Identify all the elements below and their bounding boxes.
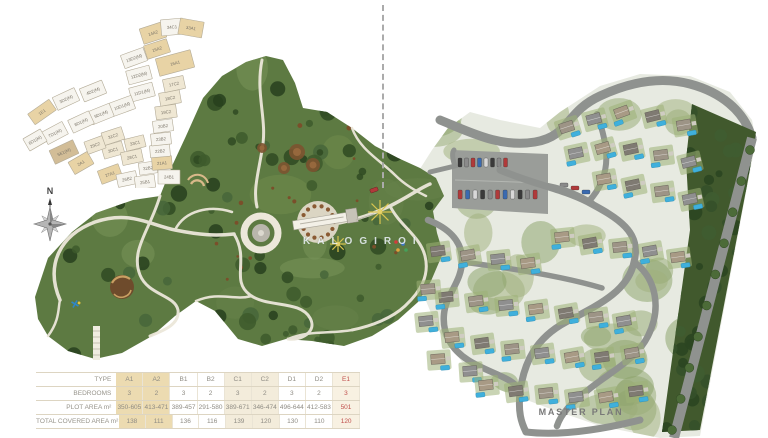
- pool: [592, 364, 602, 370]
- north-label: N: [47, 186, 54, 196]
- parcel: 3D2(M): [52, 88, 80, 111]
- pool: [531, 268, 541, 274]
- house: [524, 298, 551, 322]
- table-cell: 3: [279, 387, 306, 400]
- parcel-label: 34C1: [167, 24, 178, 30]
- table-cell: 2: [198, 387, 225, 400]
- house: [559, 346, 586, 370]
- parcel: 1E1: [28, 99, 57, 125]
- house: [416, 279, 441, 301]
- table-row-label: TYPE: [36, 373, 116, 386]
- table-cell: 2: [143, 387, 170, 400]
- pool: [665, 196, 675, 202]
- table-cell: C2: [252, 373, 279, 386]
- parcel-label: 22B2: [155, 148, 166, 154]
- parcel: 25B1: [134, 174, 156, 188]
- table-cell: 120: [333, 415, 360, 428]
- table-cell: 413-471: [143, 401, 170, 414]
- pool: [623, 253, 632, 258]
- table-cell: 496-644: [279, 401, 306, 414]
- house: [474, 375, 500, 398]
- parcel-label: 21A1: [157, 160, 168, 166]
- pool: [455, 343, 464, 348]
- table-cell: 110: [306, 415, 333, 428]
- parcel: 24B1: [158, 170, 180, 184]
- pool: [417, 296, 426, 301]
- table-cell: 350-605: [116, 401, 143, 414]
- table-cell: D2: [306, 373, 333, 386]
- parcel: 4D2(M): [79, 80, 106, 102]
- pool: [429, 327, 438, 332]
- table-cell: D1: [279, 373, 306, 386]
- table-cell: 291-580: [198, 401, 225, 414]
- table-cell: B1: [170, 373, 197, 386]
- house: [650, 180, 677, 204]
- house: [666, 246, 693, 270]
- house: [553, 302, 580, 326]
- table-cell: 2: [252, 387, 279, 400]
- pool: [545, 358, 555, 364]
- pool: [440, 365, 449, 370]
- table-row: PLOT AREA m²350-605413-471389-457291-580…: [36, 400, 360, 414]
- house: [414, 311, 440, 334]
- parcel-map: 14A234C133A115A216A113D2(M)12D2(M)11D1(M…: [8, 6, 258, 188]
- steps-path: [93, 326, 100, 360]
- parcel: 17C2: [162, 75, 185, 92]
- table-cell: 139: [226, 415, 253, 428]
- pool: [519, 396, 529, 402]
- pool: [681, 262, 691, 268]
- house: [550, 227, 576, 250]
- house: [426, 349, 451, 371]
- house: [577, 232, 604, 256]
- table-row-label: TOTAL COVERED AREA m²: [36, 415, 119, 428]
- table-cell: C1: [225, 373, 252, 386]
- pool: [476, 392, 485, 397]
- table-cell: 138: [119, 415, 146, 428]
- pool: [599, 322, 609, 328]
- parcel: 18C2: [159, 90, 182, 106]
- table-cell: 130: [280, 415, 307, 428]
- parcel: 19C2: [155, 104, 178, 120]
- house: [591, 168, 618, 192]
- house: [590, 346, 617, 370]
- table-cell: 3: [116, 387, 143, 400]
- dog-park: [110, 275, 134, 299]
- parcel: 20B2: [152, 119, 173, 134]
- master-plan-caption: MASTER PLAN: [514, 407, 648, 417]
- compass-rose-icon: [33, 198, 67, 241]
- table-cell: 389-671: [225, 401, 252, 414]
- table-cell: A1: [116, 373, 143, 386]
- table-cell: 136: [173, 415, 200, 428]
- house: [494, 295, 520, 318]
- parcel: 33C1: [124, 135, 146, 151]
- table-cell: 501: [333, 401, 360, 414]
- table-cell: 412-583: [306, 401, 333, 414]
- table-cell: 346-474: [252, 401, 279, 414]
- table-cell: 2: [306, 387, 333, 400]
- pool: [639, 396, 649, 402]
- house: [624, 380, 651, 404]
- house: [470, 332, 497, 356]
- house: [671, 114, 698, 138]
- table-cell: B2: [198, 373, 225, 386]
- house: [516, 252, 543, 276]
- house: [464, 290, 491, 314]
- pool: [441, 256, 451, 262]
- house: [534, 383, 560, 406]
- house: [619, 342, 646, 366]
- house: [584, 306, 611, 330]
- pool: [549, 399, 558, 404]
- table-row-label: PLOT AREA m²: [36, 401, 116, 414]
- pool: [436, 304, 445, 309]
- table-row: BEDROOMS323232323: [36, 386, 360, 400]
- table-cell: 3: [170, 387, 197, 400]
- pool: [509, 311, 518, 316]
- parcel-label: 24B1: [164, 175, 175, 180]
- pool: [552, 244, 561, 249]
- divider-dashed-line: [382, 5, 384, 188]
- table-cell: 3: [333, 387, 360, 400]
- parcel: 21A1: [151, 156, 172, 171]
- table-cell: 111: [146, 415, 173, 428]
- table-row-label: BEDROOMS: [36, 387, 116, 400]
- table-row: TYPEA1A2B1B2C1C2D1D2E1: [36, 372, 360, 386]
- house: [440, 327, 466, 350]
- pool: [501, 265, 510, 270]
- pool: [651, 162, 661, 168]
- pool: [479, 306, 489, 312]
- house: [504, 380, 531, 404]
- table-cell: A2: [143, 373, 170, 386]
- parcel: 12D2(M): [126, 65, 153, 85]
- pool: [526, 316, 536, 322]
- parcel: 13D2(M): [120, 47, 147, 68]
- watermark: KALOGIROI: [303, 236, 473, 247]
- table-cell: E1: [333, 373, 360, 386]
- compass: N: [26, 184, 74, 250]
- house: [649, 144, 676, 168]
- house: [608, 237, 634, 260]
- table-cell: 389-457: [170, 401, 197, 414]
- house: [530, 342, 557, 366]
- table-row: TOTAL COVERED AREA m²1381111361161391201…: [36, 414, 360, 428]
- parcel: 23B2: [150, 132, 171, 146]
- house: [486, 249, 512, 272]
- parcel: 33A1: [178, 18, 204, 38]
- table-cell: 116: [199, 415, 226, 428]
- house: [500, 339, 526, 362]
- table-cell: 120: [253, 415, 280, 428]
- table-cell: 3: [225, 387, 252, 400]
- parcel: 11D1(M): [129, 82, 156, 102]
- pool: [485, 348, 495, 354]
- pool: [502, 356, 511, 361]
- legend-table: TYPEA1A2B1B2C1C2D1D2E1BEDROOMS323232323P…: [36, 372, 360, 429]
